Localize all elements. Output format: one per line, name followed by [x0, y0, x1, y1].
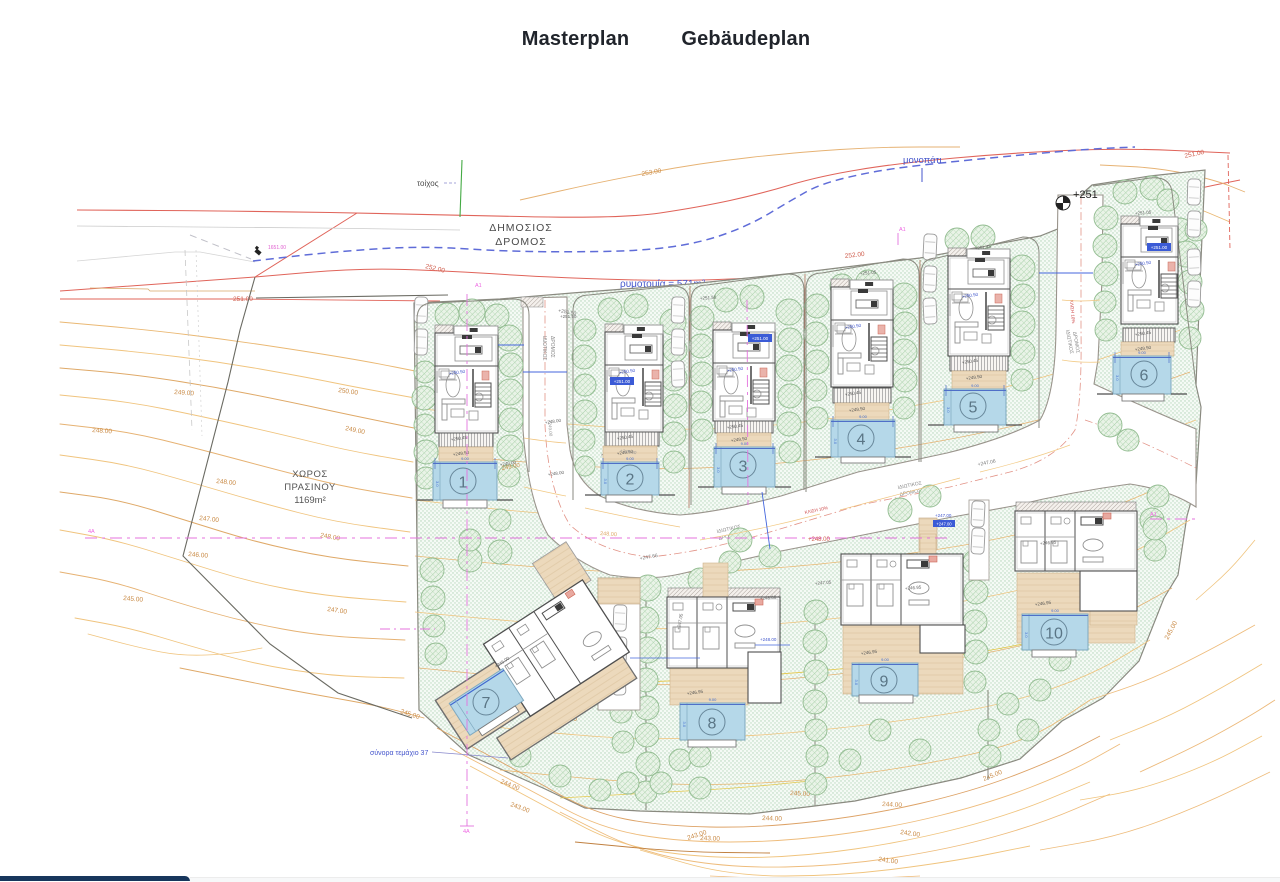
svg-text:246.00: 246.00 — [188, 551, 209, 560]
svg-text:9.00: 9.00 — [1051, 608, 1060, 613]
svg-text:249.00: 249.00 — [345, 425, 366, 436]
svg-text:ΙΔΙΩΤΙΚΟΣ: ΙΔΙΩΤΙΚΟΣ — [541, 336, 547, 360]
svg-text:247.00: 247.00 — [327, 606, 348, 616]
svg-text:247.00: 247.00 — [199, 515, 220, 524]
svg-text:242.00: 242.00 — [900, 829, 921, 839]
svg-text:μονοπάτι: μονοπάτι — [903, 155, 941, 166]
svg-text:249.00: 249.00 — [174, 389, 195, 397]
svg-text:248.00: 248.00 — [216, 478, 237, 487]
svg-text:3.0: 3.0 — [1115, 375, 1120, 381]
svg-text:3.0: 3.0 — [833, 439, 838, 445]
svg-text:1169m²: 1169m² — [294, 495, 326, 506]
svg-text:3.0: 3.0 — [435, 481, 440, 487]
svg-text:A1: A1 — [899, 227, 906, 233]
svg-text:243.00: 243.00 — [509, 801, 530, 815]
svg-text:ΔΡΟΜΟΣ: ΔΡΟΜΟΣ — [495, 236, 547, 248]
svg-text:10: 10 — [1045, 626, 1063, 643]
svg-text:+251: +251 — [1073, 189, 1098, 201]
svg-text:245.00: 245.00 — [1164, 620, 1180, 641]
svg-text:+247.00: +247.00 — [936, 522, 952, 527]
svg-text:4A: 4A — [463, 829, 470, 835]
svg-text:251.00: 251.00 — [233, 296, 253, 303]
svg-text:ΠΡΑΣΙΝΟΥ: ΠΡΑΣΙΝΟΥ — [284, 482, 336, 493]
svg-text:3.0: 3.0 — [946, 407, 951, 413]
svg-text:252.00: 252.00 — [844, 251, 865, 260]
svg-text:+251.00: +251.00 — [1151, 245, 1168, 250]
svg-text:3.0: 3.0 — [1024, 632, 1029, 638]
svg-text:9.00: 9.00 — [971, 383, 980, 388]
svg-text:241.00: 241.00 — [878, 856, 899, 866]
svg-text:+251.00: +251.00 — [752, 336, 769, 341]
svg-text:1651.00: 1651.00 — [268, 245, 286, 251]
svg-text:244.00: 244.00 — [762, 815, 782, 823]
svg-text:8: 8 — [708, 716, 717, 733]
svg-text:σύνορα τεμάχιο 37: σύνορα τεμάχιο 37 — [370, 749, 428, 757]
svg-text:7: 7 — [482, 695, 491, 712]
svg-text:250.00: 250.00 — [338, 387, 359, 397]
svg-text:+251.00: +251.00 — [614, 379, 631, 384]
svg-text:ΔΗΜΟΣΙΟΣ: ΔΗΜΟΣΙΟΣ — [489, 222, 553, 234]
svg-text:6: 6 — [1140, 368, 1149, 385]
svg-text:2: 2 — [626, 472, 635, 489]
svg-text:+247.00: +247.00 — [935, 513, 952, 518]
svg-text:248.00: 248.00 — [320, 532, 341, 542]
svg-text:+248.00: +248.00 — [808, 537, 831, 543]
svg-text:ΧΩΡΟΣ: ΧΩΡΟΣ — [292, 469, 328, 480]
svg-text:245.00: 245.00 — [123, 595, 144, 604]
svg-text:A1: A1 — [475, 283, 482, 289]
svg-text:244.00: 244.00 — [499, 778, 520, 792]
svg-text:1: 1 — [459, 475, 468, 492]
svg-text:248.00: 248.00 — [600, 531, 617, 538]
svg-text:9: 9 — [880, 674, 889, 691]
svg-text:244.00: 244.00 — [882, 801, 903, 809]
svg-text:3.0: 3.0 — [682, 722, 687, 728]
svg-text:τοίχος: τοίχος — [417, 179, 439, 188]
svg-text:+248.00: +248.00 — [760, 637, 777, 642]
svg-text:9.00: 9.00 — [626, 456, 635, 461]
svg-text:9.00: 9.00 — [859, 414, 868, 419]
svg-text:253.00: 253.00 — [641, 168, 662, 178]
svg-text:3.0: 3.0 — [854, 680, 859, 686]
svg-text:248.00: 248.00 — [92, 427, 113, 435]
svg-text:9.00: 9.00 — [881, 657, 890, 662]
svg-text:252.00: 252.00 — [425, 263, 446, 275]
svg-text:4: 4 — [857, 432, 866, 449]
svg-text:4A: 4A — [88, 529, 95, 535]
svg-text:9.00: 9.00 — [709, 697, 718, 702]
svg-text:A1: A1 — [1150, 512, 1157, 518]
svg-text:3.0: 3.0 — [603, 479, 608, 485]
svg-text:ΔΡΟΜΟΣ: ΔΡΟΜΟΣ — [549, 336, 555, 358]
svg-text:+251.50: +251.50 — [560, 314, 577, 319]
svg-text:9.00: 9.00 — [461, 456, 470, 461]
svg-text:5: 5 — [969, 400, 978, 417]
svg-text:3.0: 3.0 — [716, 467, 721, 473]
svg-text:3: 3 — [739, 459, 748, 476]
